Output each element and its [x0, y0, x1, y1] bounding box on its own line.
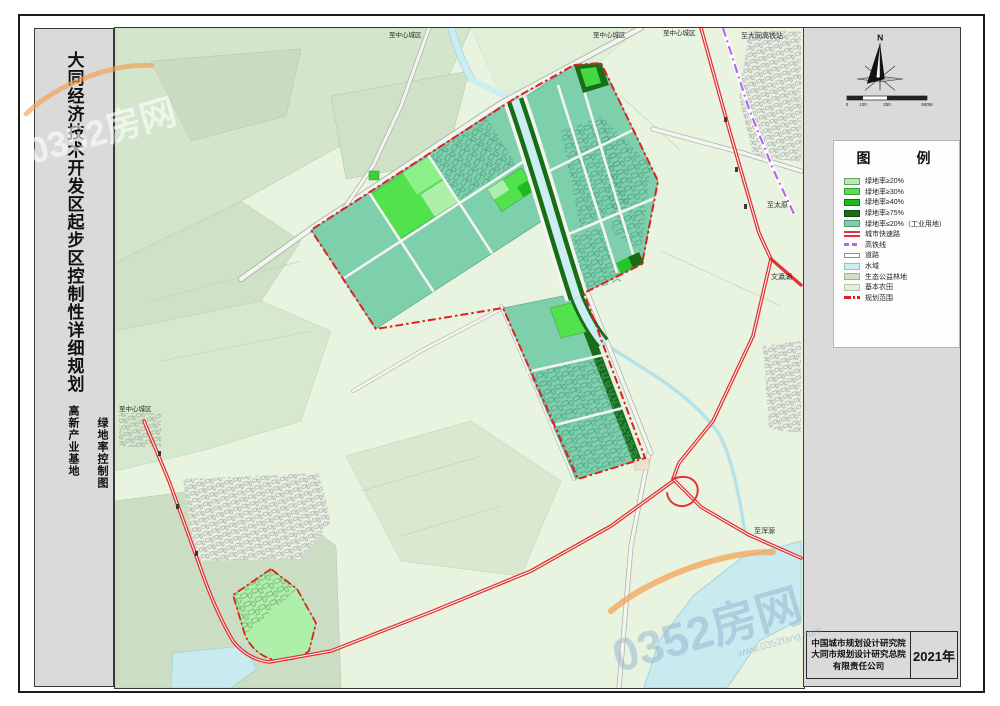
map-frame: 至中心城区 至中心城区 至中心城区 至大同高铁站 至太原 文瀛湖 至浑源 至中心…: [114, 27, 805, 689]
legend-swatch-green75: [844, 210, 860, 217]
label-wenying-lake: 文瀛湖: [771, 272, 792, 281]
legend-swatch-road: [844, 253, 860, 258]
label-to-hsr-station: 至大同高铁站: [741, 31, 783, 40]
legend-items: 绿地率≥20% 绿地率≥30% 绿地率≥40% 绿地率≥75% 绿地率≤20%（…: [834, 176, 959, 303]
legend-panel: [803, 27, 961, 687]
legend-swatch-industrial: [844, 220, 860, 227]
plan-main-title: 大同经济技术开发区起步区控制性详细规划: [62, 51, 87, 393]
scale-tick-0: 0: [846, 102, 849, 107]
scale-tick-250: 250: [883, 102, 891, 107]
title-sidebar: 大同经济技术开发区起步区控制性详细规划 高新产业基地 绿地率控制图: [34, 28, 114, 687]
legend-title: 图 例: [834, 148, 959, 168]
legend-swatch-forest: [844, 273, 860, 280]
south-leg-block: [503, 293, 641, 479]
label-to-city-center-1: 至中心城区: [389, 30, 422, 39]
plan-sheet: 大同经济技术开发区起步区控制性详细规划 高新产业基地 绿地率控制图: [0, 0, 1000, 706]
label-to-hunyuan: 至浑源: [754, 526, 775, 535]
legend-item: 道路: [834, 250, 959, 261]
legend-item: 规划范围: [834, 293, 959, 304]
north-label: N: [877, 32, 883, 42]
legend-item: 基本农田: [834, 282, 959, 293]
scale-tick-100: 100: [859, 102, 867, 107]
legend-swatch-hsr: [844, 243, 860, 246]
map-canvas: 至中心城区 至中心城区 至中心城区 至大同高铁站 至太原 文瀛湖 至浑源 至中心…: [115, 28, 804, 688]
legend-item: 城市快速路: [834, 229, 959, 240]
label-to-city-center-4: 至中心城区: [119, 404, 152, 413]
legend-swatch-boundary: [844, 296, 860, 299]
legend-item: 绿地率≥30%: [834, 187, 959, 198]
farmland-forest-areas: [115, 28, 801, 688]
north-arrow: N: [848, 30, 912, 96]
legend-box: 图 例 绿地率≥20% 绿地率≥30% 绿地率≥40% 绿地率≥75% 绿地率≤…: [833, 140, 960, 348]
legend-item: 绿地率≥20%: [834, 176, 959, 187]
plan-subtitle-drawing: 绿地率控制图: [94, 417, 110, 489]
label-to-city-center-3: 至中心城区: [663, 28, 696, 37]
attribution-box: 中国城市规划设计研究院 大同市规划设计研究总院 有限责任公司 2021年: [806, 631, 958, 679]
legend-swatch-water: [844, 263, 860, 270]
legend-item: 绿地率≥40%: [834, 197, 959, 208]
legend-item: 生态公益林地: [834, 271, 959, 282]
legend-swatch-green20: [844, 178, 860, 185]
attribution-orgs: 中国城市规划设计研究院 大同市规划设计研究总院 有限责任公司: [807, 632, 911, 678]
legend-item: 绿地率≥75%: [834, 208, 959, 219]
scale-tick-500: 500M: [921, 102, 933, 107]
legend-item: 高铁线: [834, 240, 959, 251]
scale-bar: 0 100 250 500M: [845, 94, 937, 110]
label-to-taiyuan: 至太原: [767, 200, 788, 209]
legend-item: 水域: [834, 261, 959, 272]
legend-swatch-green40: [844, 199, 860, 206]
plan-subtitle-base: 高新产业基地: [65, 405, 81, 477]
legend-swatch-expressway: [844, 231, 860, 237]
legend-swatch-green30: [844, 188, 860, 195]
river: [644, 541, 801, 688]
legend-swatch-farmland: [844, 284, 860, 291]
small-green-parcel: [369, 171, 379, 180]
attribution-year: 2021年: [911, 632, 957, 678]
legend-item: 绿地率≤20%（工业用地）: [834, 218, 959, 229]
label-to-city-center-2: 至中心城区: [593, 30, 626, 39]
